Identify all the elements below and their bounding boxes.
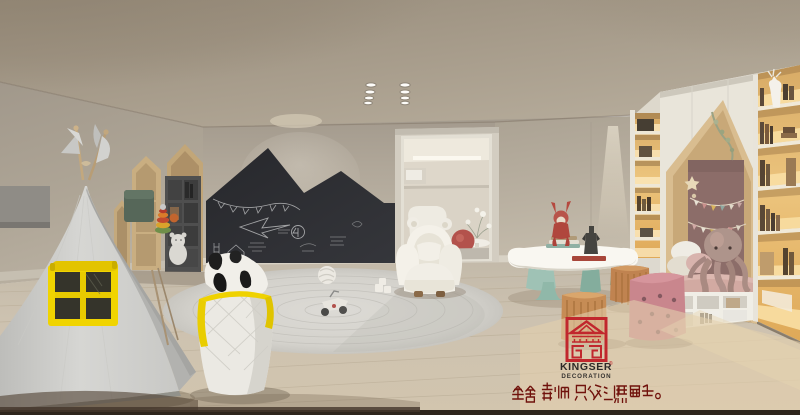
svg-text:DECORATION: DECORATION <box>561 373 611 380</box>
svg-text:®: ® <box>609 360 613 367</box>
svg-text:KINGSER: KINGSER <box>560 361 612 373</box>
